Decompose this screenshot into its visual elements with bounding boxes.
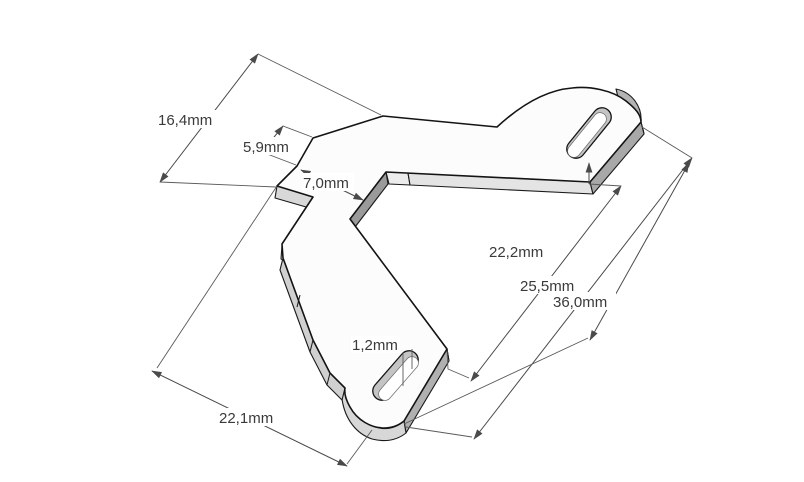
dim-22-1-ext-line xyxy=(157,186,277,368)
dim-22-2-label: 22,2mm xyxy=(489,244,543,261)
dim-22-1-label: 22,1mm xyxy=(219,410,273,427)
part-body xyxy=(275,88,644,441)
dim-36-0-line xyxy=(590,163,689,340)
dim-22-1-ext-line xyxy=(347,430,372,464)
side-face-mid-cap xyxy=(386,172,410,185)
dim-16-4-ext-line xyxy=(160,182,276,187)
dim-1-2-label: 1,2mm xyxy=(352,337,398,354)
dim-16-4-ext-line xyxy=(258,54,381,115)
dim-22-2 xyxy=(447,163,621,381)
cad-canvas: 16,4mm 5,9mm 7,0mm 22,2mm 25,5mm 36,0mm … xyxy=(0,0,804,482)
dim-25-5-ext-line xyxy=(642,127,692,158)
dim-16-4-label: 16,4mm xyxy=(158,112,212,129)
dim-22-2-ext-line xyxy=(447,351,469,378)
dim-25-5-ext-line xyxy=(406,427,472,437)
dim-7-0-label: 7,0mm xyxy=(303,175,349,192)
dim-5-9-label: 5,9mm xyxy=(243,139,289,156)
dim-36-0-label: 36,0mm xyxy=(553,294,607,311)
dim-5-9-ext-line xyxy=(283,126,312,137)
cad-viewport: 16,4mm 5,9mm 7,0mm 22,2mm 25,5mm 36,0mm … xyxy=(0,0,804,482)
